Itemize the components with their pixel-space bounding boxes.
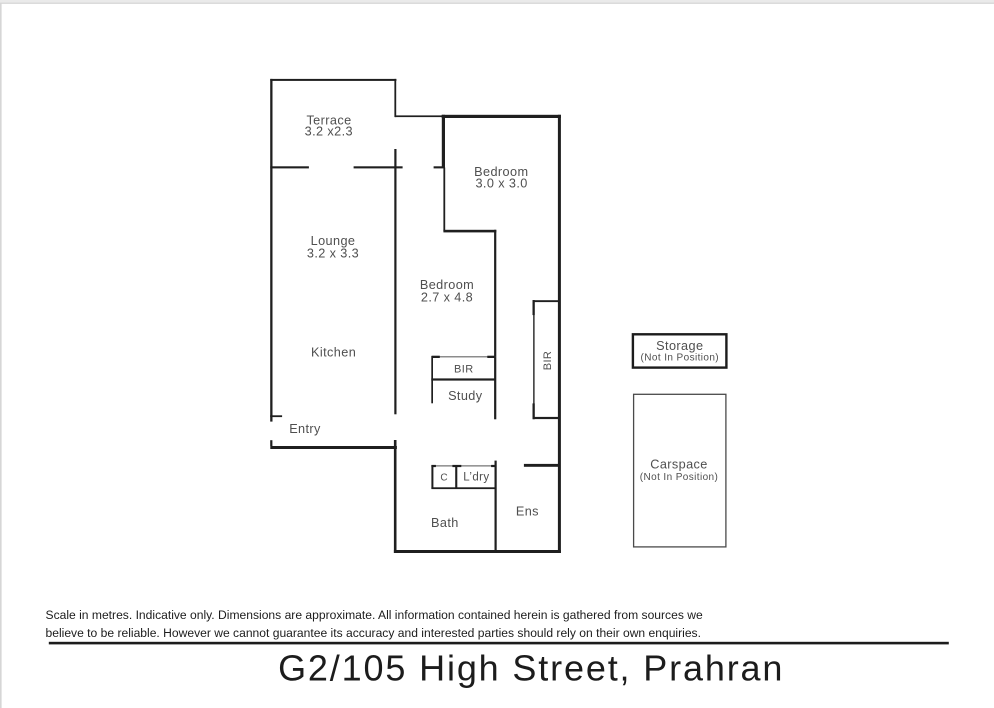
- svg-text:Study: Study: [448, 389, 483, 403]
- svg-text:Storage: Storage: [656, 339, 703, 353]
- svg-text:(Not In Position): (Not In Position): [640, 472, 719, 483]
- svg-text:Ens: Ens: [516, 505, 539, 519]
- svg-text:believe to be reliable. Howeve: believe to be reliable. However we canno…: [46, 626, 701, 640]
- svg-text:Kitchen: Kitchen: [311, 345, 356, 359]
- svg-text:3.0 x 3.0: 3.0 x 3.0: [475, 177, 527, 191]
- svg-text:Carspace: Carspace: [650, 458, 708, 472]
- svg-text:BIR: BIR: [542, 351, 554, 371]
- svg-text:2.7 x 4.8: 2.7 x 4.8: [421, 290, 473, 304]
- svg-text:L’dry: L’dry: [463, 472, 489, 484]
- svg-text:3.2 x 3.3: 3.2 x 3.3: [307, 246, 359, 260]
- svg-text:Scale in metres. Indicative on: Scale in metres. Indicative only. Dimens…: [46, 608, 703, 622]
- svg-text:G2/105 High Street, Prahran: G2/105 High Street, Prahran: [278, 648, 784, 689]
- svg-text:(Not In Position): (Not In Position): [641, 352, 720, 363]
- svg-text:Bath: Bath: [431, 516, 459, 530]
- svg-text:C: C: [440, 473, 448, 484]
- svg-text:Entry: Entry: [289, 422, 321, 436]
- svg-text:BIR: BIR: [454, 364, 474, 376]
- svg-text:3.2 x2.3: 3.2 x2.3: [305, 125, 353, 139]
